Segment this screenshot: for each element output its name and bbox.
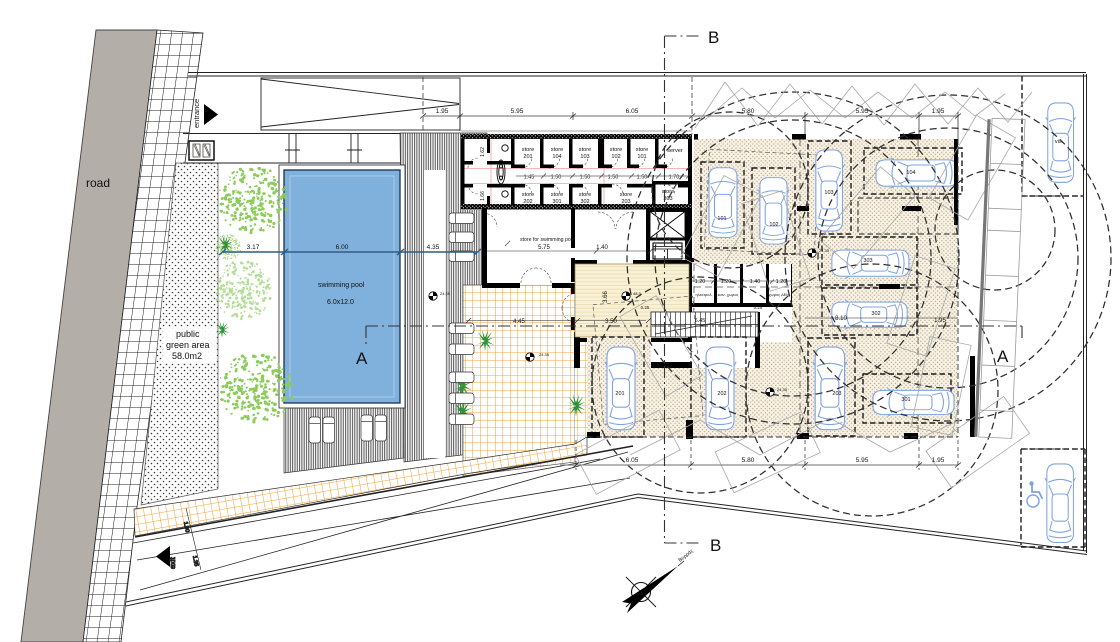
svg-text:48.3: 48.3 xyxy=(633,291,642,296)
svg-text:1.20: 1.20 xyxy=(695,279,706,285)
svg-text:B: B xyxy=(710,536,721,555)
svg-text:1.50: 1.50 xyxy=(580,175,591,181)
svg-text:entrance: entrance xyxy=(192,99,201,128)
svg-text:103: 103 xyxy=(824,190,833,196)
svg-text:24.35: 24.35 xyxy=(440,291,451,296)
svg-text:1.70: 1.70 xyxy=(669,175,680,181)
svg-text:1.62: 1.62 xyxy=(480,147,486,157)
svg-text:1.95: 1.95 xyxy=(932,457,945,464)
svg-text:3.17: 3.17 xyxy=(247,244,260,251)
svg-text:store: store xyxy=(636,147,648,153)
svg-text:1.95: 1.95 xyxy=(932,108,945,115)
svg-text:A: A xyxy=(356,349,368,368)
svg-text:0.25: 0.25 xyxy=(754,305,763,310)
svg-text:202: 202 xyxy=(523,199,532,205)
svg-text:χωρος ΔΕΗ: χωρος ΔΕΗ xyxy=(769,292,790,297)
svg-text:store: store xyxy=(610,147,622,153)
svg-text:κοιν. χωρος: κοιν. χωρος xyxy=(718,292,739,297)
svg-text:1.50: 1.50 xyxy=(608,175,619,181)
svg-text:101: 101 xyxy=(637,154,646,160)
svg-text:302: 302 xyxy=(580,199,589,205)
svg-text:public: public xyxy=(176,329,200,339)
svg-text:4.35: 4.35 xyxy=(427,244,440,251)
svg-text:5.95: 5.95 xyxy=(856,457,869,464)
svg-text:1.95: 1.95 xyxy=(436,108,449,115)
svg-text:6.05: 6.05 xyxy=(626,108,639,115)
svg-text:24.35: 24.35 xyxy=(539,352,550,357)
svg-text:104: 104 xyxy=(552,154,561,160)
svg-text:301: 301 xyxy=(901,397,910,403)
svg-text:store: store xyxy=(522,192,534,198)
svg-text:302: 302 xyxy=(871,311,880,317)
svg-text:store: store xyxy=(522,147,534,153)
svg-text:104: 104 xyxy=(906,170,915,176)
svg-text:203: 203 xyxy=(621,199,630,205)
svg-text:road: road xyxy=(86,176,110,190)
svg-text:203: 203 xyxy=(832,391,841,397)
svg-text:1.50: 1.50 xyxy=(637,175,648,181)
svg-text:102: 102 xyxy=(769,222,778,228)
svg-text:green area: green area xyxy=(166,340,210,350)
svg-text:1.50: 1.50 xyxy=(551,175,562,181)
svg-text:1.45: 1.45 xyxy=(524,175,535,181)
svg-text:3.66: 3.66 xyxy=(603,291,609,303)
svg-text:6.05: 6.05 xyxy=(626,457,639,464)
svg-text:1.95: 1.95 xyxy=(934,318,946,324)
svg-text:6.0x12.0: 6.0x12.0 xyxy=(327,299,354,306)
svg-text:5.80: 5.80 xyxy=(742,457,755,464)
svg-text:5.95: 5.95 xyxy=(856,108,869,115)
svg-text:store: store xyxy=(620,192,632,198)
svg-text:0.25: 0.25 xyxy=(641,305,650,310)
svg-text:6.45: 6.45 xyxy=(695,318,706,324)
svg-text:303: 303 xyxy=(863,258,872,264)
svg-text:58.0m2: 58.0m2 xyxy=(172,351,202,361)
svg-text:101: 101 xyxy=(717,216,726,222)
svg-text:5.75: 5.75 xyxy=(538,245,550,251)
svg-text:8.10: 8.10 xyxy=(835,316,847,322)
svg-text:24.35: 24.35 xyxy=(819,248,830,253)
svg-text:store: store xyxy=(579,192,591,198)
svg-text:202: 202 xyxy=(717,391,726,397)
svg-text:1.20: 1.20 xyxy=(776,279,787,285)
svg-text:3.50: 3.50 xyxy=(605,319,617,325)
svg-text:201: 201 xyxy=(523,154,532,160)
svg-text:store: store xyxy=(551,192,563,198)
svg-text:5.80: 5.80 xyxy=(742,108,755,115)
svg-text:store: store xyxy=(551,147,563,153)
svg-text:1.40: 1.40 xyxy=(750,279,761,285)
svg-text:store: store xyxy=(662,189,674,195)
svg-text:1.66: 1.66 xyxy=(480,191,486,201)
svg-text:301: 301 xyxy=(552,199,561,205)
svg-text:4.45: 4.45 xyxy=(513,319,525,325)
svg-text:5.95: 5.95 xyxy=(511,108,524,115)
svg-text:6.00: 6.00 xyxy=(336,244,349,251)
svg-text:24.35: 24.35 xyxy=(777,387,788,392)
svg-text:201: 201 xyxy=(615,391,624,397)
svg-text:store for swimming pool: store for swimming pool xyxy=(520,237,575,243)
svg-text:102: 102 xyxy=(611,154,620,160)
svg-text:103: 103 xyxy=(580,154,589,160)
svg-text:ηλεκτρολ.: ηλεκτρολ. xyxy=(695,292,712,297)
svg-text:1.40: 1.40 xyxy=(596,245,608,251)
svg-text:A: A xyxy=(997,347,1009,366)
svg-text:exit: exit xyxy=(168,556,177,569)
svg-text:B: B xyxy=(708,28,719,47)
svg-text:swimming pool: swimming pool xyxy=(318,282,365,289)
svg-text:store: store xyxy=(579,147,591,153)
svg-text:server: server xyxy=(667,148,683,154)
